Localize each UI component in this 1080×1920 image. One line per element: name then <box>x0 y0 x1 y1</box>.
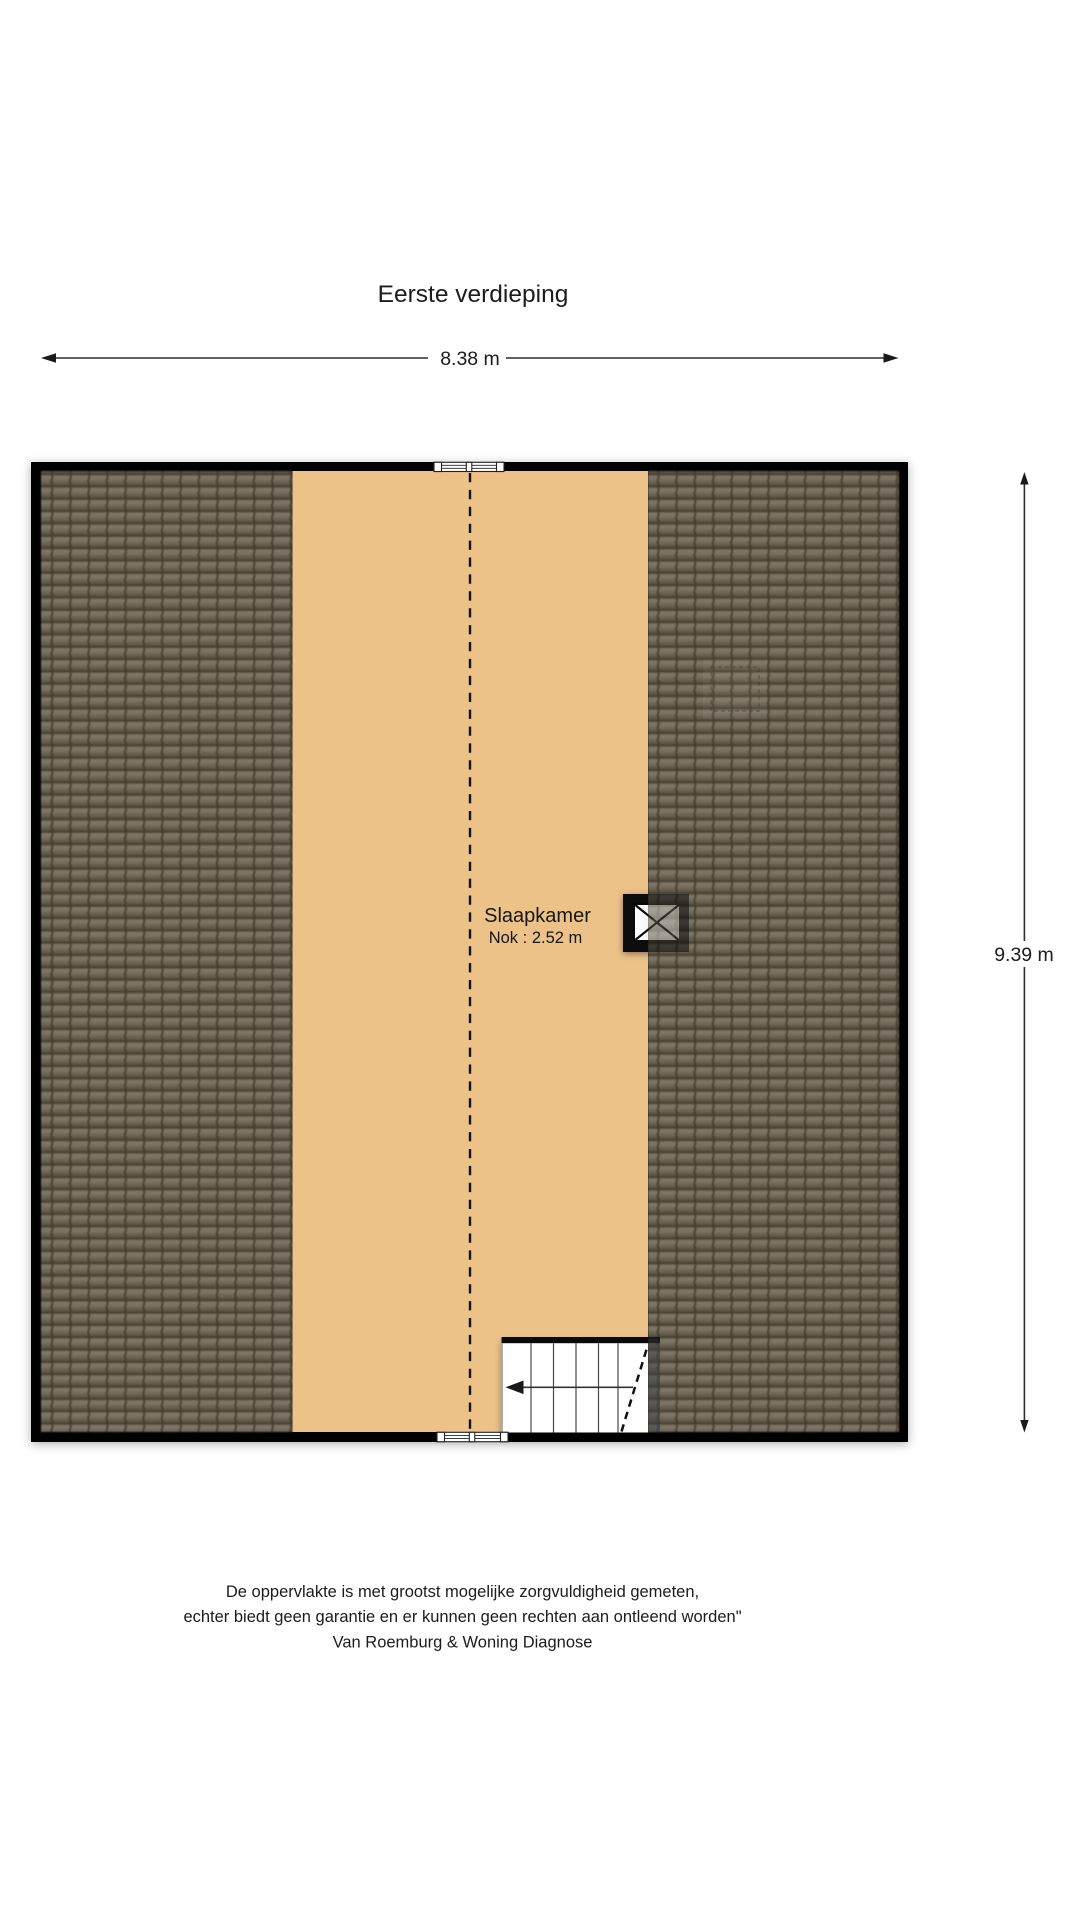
svg-text:echter biedt geen garantie en: echter biedt geen garantie en er kunnen … <box>183 1608 741 1626</box>
svg-text:8.38 m: 8.38 m <box>440 348 500 370</box>
svg-text:Van Roemburg & Woning Diagnose: Van Roemburg & Woning Diagnose <box>333 1634 593 1652</box>
svg-text:De oppervlakte is met grootst: De oppervlakte is met grootst mogelijke … <box>226 1583 699 1601</box>
svg-text:Nok : 2.52 m: Nok : 2.52 m <box>489 929 583 947</box>
svg-text:Eerste verdieping: Eerste verdieping <box>378 281 569 308</box>
svg-text:Slaapkamer: Slaapkamer <box>484 905 591 927</box>
svg-text:9.39 m: 9.39 m <box>994 944 1054 966</box>
